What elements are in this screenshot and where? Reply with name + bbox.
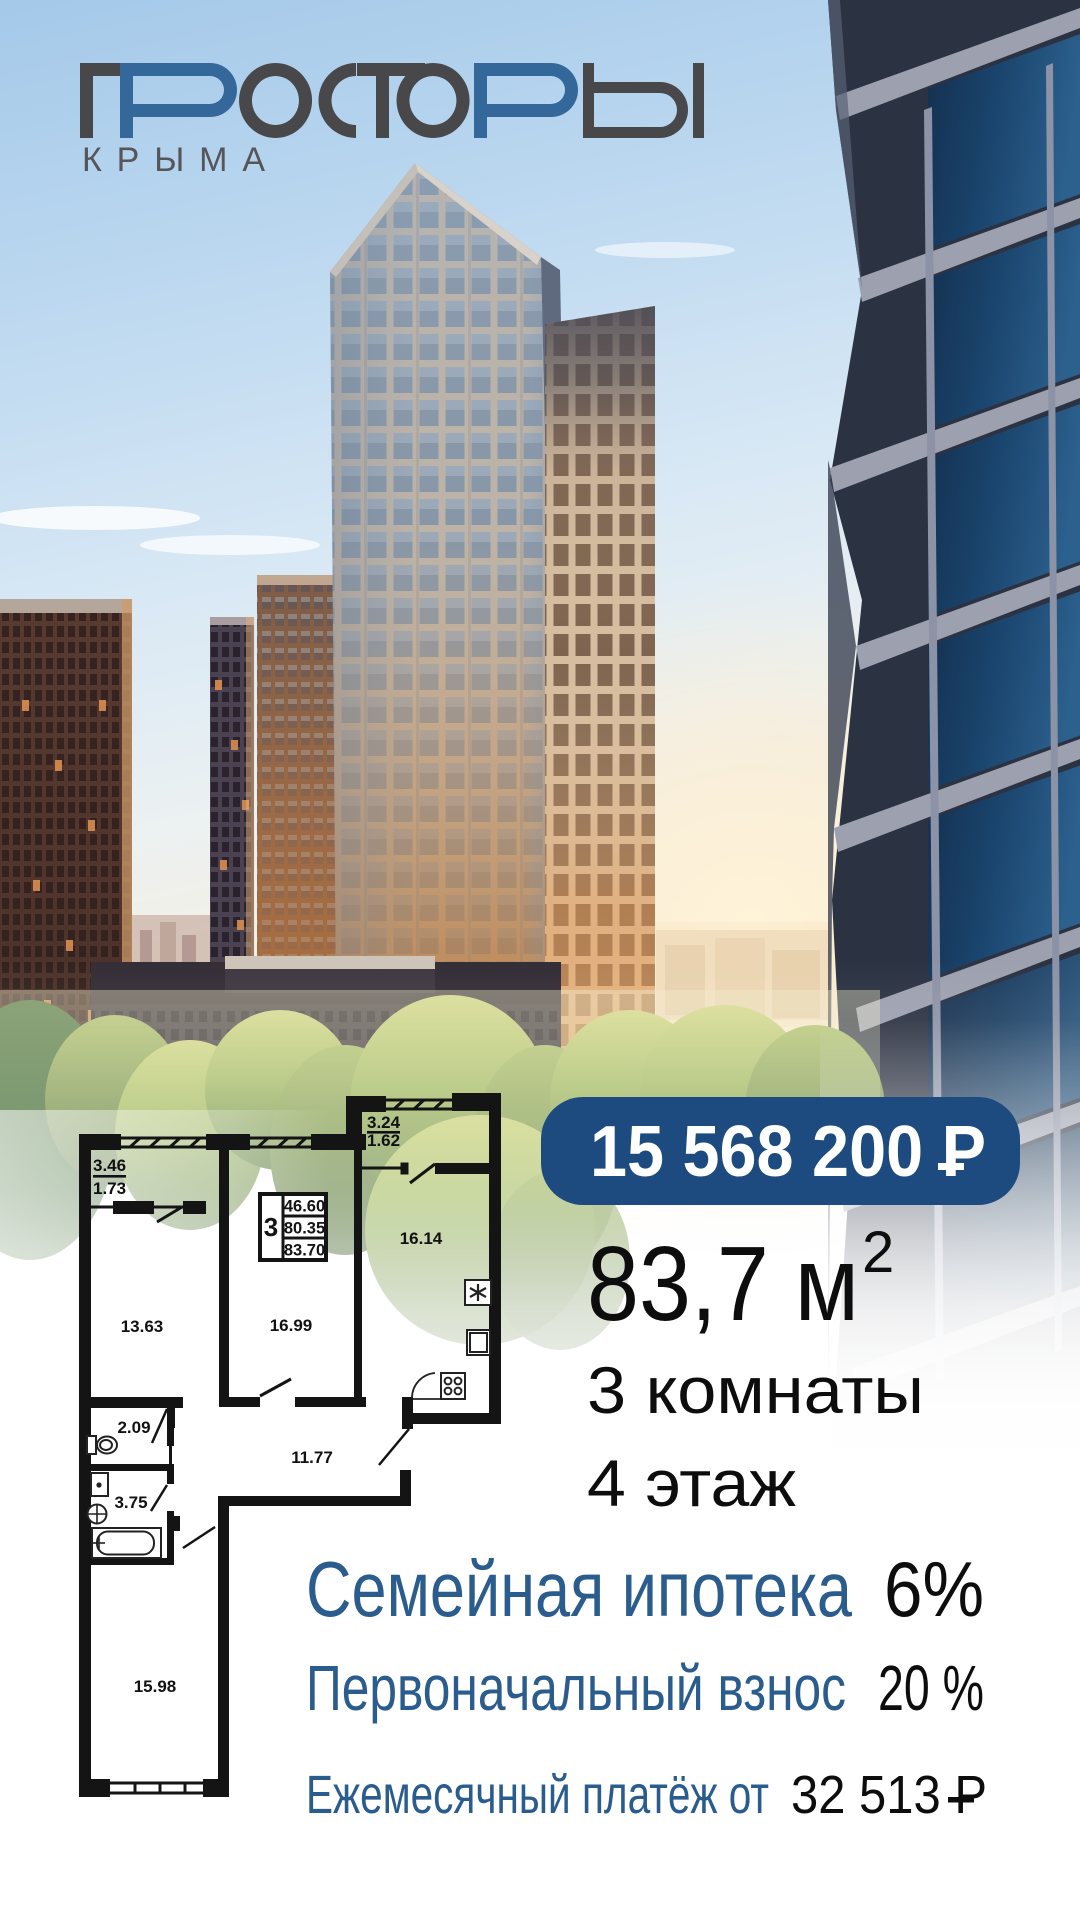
svg-text:20 %: 20 % — [878, 1652, 984, 1724]
svg-text:2: 2 — [862, 1220, 894, 1285]
svg-text:2.09: 2.09 — [117, 1418, 150, 1437]
svg-text:32 513 Р: 32 513 Р — [791, 1765, 987, 1825]
svg-text:Первоначальный взнос: Первоначальный взнос — [306, 1652, 846, 1724]
svg-text:15.98: 15.98 — [134, 1677, 177, 1696]
svg-text:6%: 6% — [884, 1545, 984, 1633]
svg-text:3: 3 — [264, 1212, 278, 1242]
svg-text:11.77: 11.77 — [291, 1448, 333, 1467]
svg-text:3.75: 3.75 — [114, 1493, 147, 1512]
svg-text:3 комнаты: 3 комнаты — [587, 1353, 924, 1427]
svg-text:80.35: 80.35 — [284, 1220, 325, 1238]
svg-text:1.73: 1.73 — [93, 1179, 126, 1198]
svg-text:13.63: 13.63 — [121, 1317, 164, 1336]
svg-text:16.14: 16.14 — [400, 1229, 443, 1248]
svg-text:83.70: 83.70 — [284, 1242, 325, 1260]
svg-text:46.60: 46.60 — [284, 1198, 325, 1216]
svg-text:83,7 м: 83,7 м — [587, 1225, 859, 1343]
svg-text:4 этаж: 4 этаж — [587, 1446, 796, 1520]
svg-text:15 568 200 Р: 15 568 200 Р — [590, 1112, 986, 1192]
svg-text:Ежемесячный платёж от: Ежемесячный платёж от — [306, 1765, 769, 1825]
svg-text:1.62: 1.62 — [367, 1131, 400, 1150]
svg-text:Семейная ипотека: Семейная ипотека — [306, 1545, 852, 1633]
svg-text:3.46: 3.46 — [93, 1156, 126, 1175]
svg-text:16.99: 16.99 — [270, 1316, 313, 1335]
svg-text:3.24: 3.24 — [367, 1113, 401, 1132]
